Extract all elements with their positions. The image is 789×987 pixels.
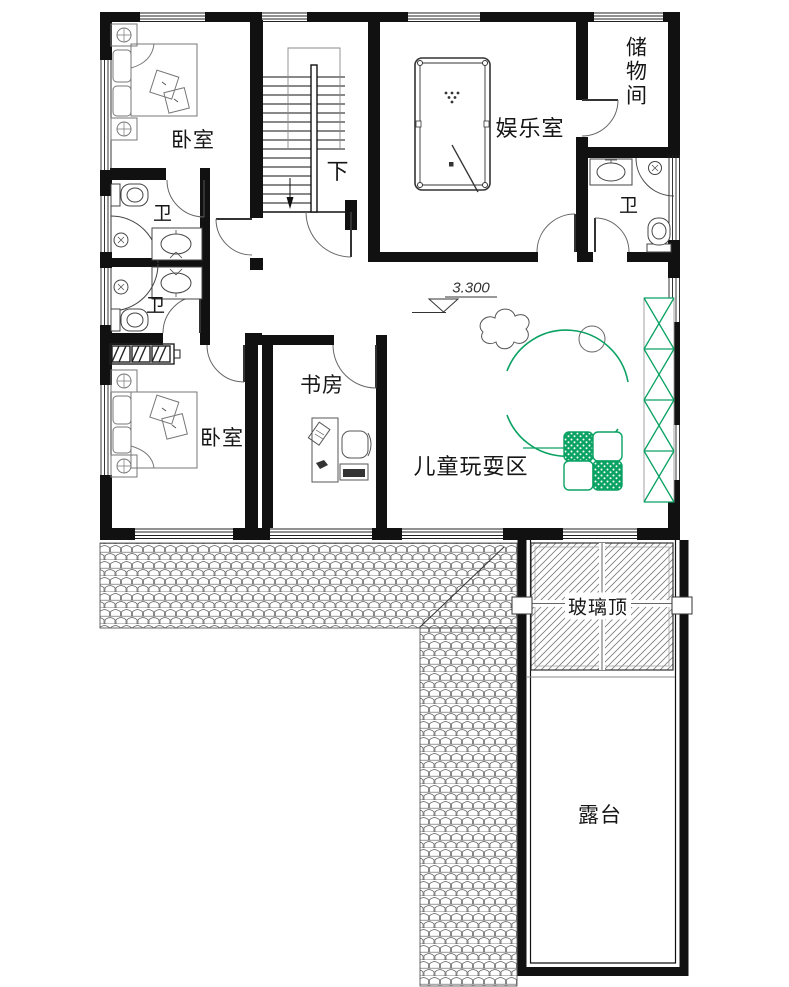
sink-icon [590,159,632,185]
bath-fixtures [111,158,674,331]
window [135,529,233,539]
chair [342,431,368,458]
window [669,155,680,240]
doors-layer [163,100,629,388]
bed [131,44,197,116]
window [101,268,111,325]
window [563,529,637,539]
pillow [113,427,131,453]
toilet-icon [647,218,671,252]
pillow [113,50,131,82]
pillow [113,86,131,116]
tiled-roof [100,543,517,986]
glass-roof-bracket-left [512,597,532,614]
door-storage [582,100,618,136]
door-lobby [216,219,252,255]
window [402,529,503,539]
room-label-bedroom-top: 卧室 [171,124,215,154]
window [140,13,205,22]
door-bath2 [163,296,200,333]
wardrobe [110,344,180,364]
room-label-bath-right: 卫 [619,191,639,218]
play-mat [564,432,622,490]
door-bedroom2 [207,345,244,382]
elevation-marker-icon [412,297,497,313]
window [262,13,307,22]
door-entertainment [537,214,575,252]
room-label-entertainment: 娱乐室 [495,111,564,143]
door-stairs [306,212,351,257]
study-furniture [308,418,371,482]
shower-icon [636,158,674,196]
sink-icon [152,228,202,260]
billiard-rack-icon [445,92,460,104]
elevation-value: 3.300 [452,280,490,297]
glass-roof-bracket-right [672,597,692,614]
green-arc [507,330,628,382]
window [101,385,111,475]
stair-stringer [311,65,317,212]
window [408,13,480,22]
room-label-glass-roof: 玻璃顶 [565,593,631,620]
bedroom-top-furniture [111,24,197,140]
desk-item [316,460,328,469]
room-label-bedroom-bottom: 卧室 [200,422,244,452]
staircase [263,48,345,212]
play-circle [579,326,605,352]
floor-plan: 卧室 下 娱乐室 储物间 卫 卫 卫 卧室 书房 儿童玩耍区 玻璃顶 露台 3.… [0,0,789,987]
green-lattice-shelf [644,298,674,502]
room-label-play-area: 儿童玩耍区 [413,449,528,481]
room-label-storage: 储物间 [625,36,646,108]
pool-table [415,58,490,192]
window [101,196,111,252]
floor-plan-drawing [0,0,789,987]
room-label-terrace: 露台 [578,799,622,829]
toilet-icon [111,184,148,206]
room-label-study: 书房 [300,369,344,399]
pillow [113,396,131,424]
bedroom-bottom-furniture [111,370,197,477]
shower-icon [111,216,158,263]
room-label-bath-left-top: 卫 [153,199,173,226]
window [270,529,372,539]
window [101,60,111,170]
window [594,13,663,22]
door-bath-right [595,218,629,252]
toilet-icon [111,309,148,331]
stairs-down-label: 下 [326,154,349,186]
room-label-bath-left-bottom: 卫 [146,291,166,318]
toy-shape [480,309,529,349]
bed [131,392,197,468]
